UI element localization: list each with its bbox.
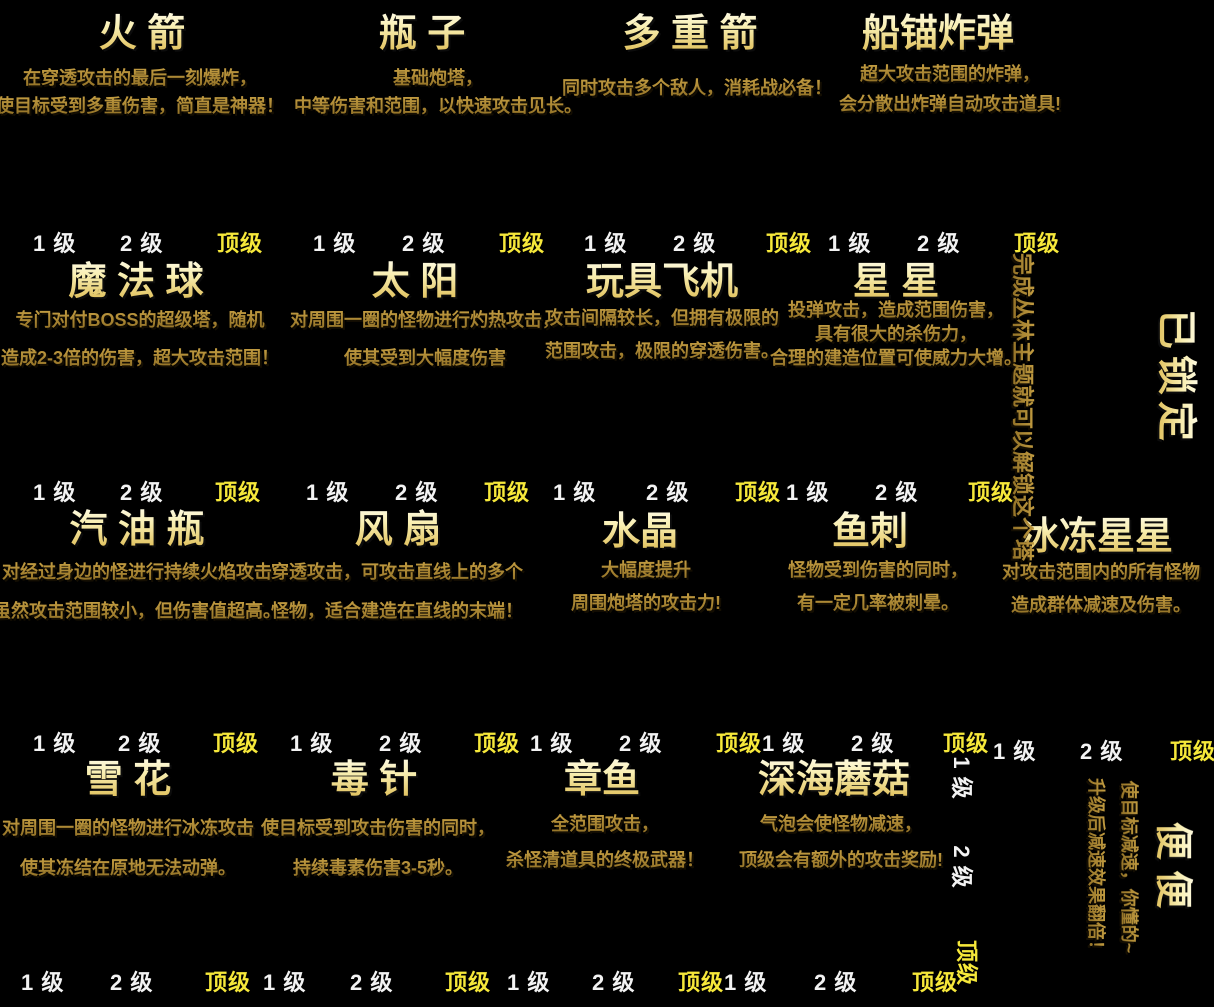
tower-desc-sun: 对周围一圈的怪物进行灼热攻击， xyxy=(290,306,560,332)
level-label-fishbone-top: 顶级 xyxy=(943,726,989,758)
level-label-bottle-top: 顶级 xyxy=(499,226,545,258)
locked-status-label: 已锁定 xyxy=(1151,309,1209,447)
tower-name-sun: 太 阳 xyxy=(372,250,459,305)
level-label-octopus-1: 1 级 xyxy=(507,965,550,997)
tower-desc-frozen-star: 对攻击范围内的所有怪物 xyxy=(1002,558,1200,584)
tower-desc-poison-needle: 持续毒素伤害3-5秒。 xyxy=(293,854,463,880)
tower-desc-deep-sea-mushroom: 气泡会使怪物减速， xyxy=(760,810,922,836)
level-label-sun-top: 顶级 xyxy=(484,475,530,507)
tower-name-octopus: 章鱼 xyxy=(564,748,640,803)
level-label-poop-top: 顶级 xyxy=(952,940,984,986)
level-label-multi-arrow-top: 顶级 xyxy=(766,226,812,258)
level-label-magic-ball-top: 顶级 xyxy=(215,475,261,507)
tower-desc-fan: 穿透攻击，可攻击直线上的多个 xyxy=(271,558,523,584)
tower-name-rocket: 火 箭 xyxy=(99,2,186,57)
tower-desc-gasoline-bottle: 对经过身边的怪进行持续火焰攻击 xyxy=(2,558,272,584)
level-label-toy-plane-1: 1 级 xyxy=(553,475,596,507)
tower-desc-bottle: 基础炮塔， xyxy=(393,64,483,90)
level-label-crystal-top: 顶级 xyxy=(716,726,762,758)
tower-encyclopedia: 火 箭在穿透攻击的最后一刻爆炸，使目标受到多重伤害，简直是神器！1 级2 级顶级… xyxy=(0,0,1214,1007)
level-label-rocket-top: 顶级 xyxy=(217,226,263,258)
tower-desc-poison-needle: 使目标受到攻击伤害的同时， xyxy=(261,814,495,840)
tower-desc-octopus: 杀怪清道具的终极武器！ xyxy=(506,846,704,872)
tower-desc-poop: 使目标减速，你懂的~ xyxy=(1117,781,1143,954)
tower-desc-multi-arrow: 同时攻击多个敌人，消耗战必备！ xyxy=(562,74,832,100)
tower-desc-octopus: 全范围攻击， xyxy=(551,810,659,836)
level-label-sun-1: 1 级 xyxy=(306,475,349,507)
level-label-snowflake-1: 1 级 xyxy=(21,965,64,997)
level-label-bottle-1: 1 级 xyxy=(313,226,356,258)
tower-name-anchor-bomb: 船锚炸弹 xyxy=(862,2,1014,57)
tower-desc-star: 合理的建造位置可使威力大增。 xyxy=(770,344,1022,370)
tower-desc-crystal: 大幅度提升 xyxy=(601,556,691,582)
tower-name-frozen-star: 冰冻星星 xyxy=(1021,505,1173,560)
level-label-star-1: 1 级 xyxy=(786,475,829,507)
level-label-gasoline-bottle-top: 顶级 xyxy=(213,726,259,758)
level-label-poison-needle-top: 顶级 xyxy=(445,965,491,997)
level-label-octopus-2: 2 级 xyxy=(592,965,635,997)
level-label-frozen-star-2: 2 级 xyxy=(1080,734,1123,766)
tower-desc-rocket: 使目标受到多重伤害，简直是神器！ xyxy=(0,92,284,118)
level-label-frozen-star-1: 1 级 xyxy=(993,734,1036,766)
level-label-deep-sea-mushroom-1: 1 级 xyxy=(724,965,767,997)
tower-desc-toy-plane: 攻击间隔较长，但拥有极限的 xyxy=(545,304,779,330)
tower-desc-fan: 怪物，适合建造在直线的末端！ xyxy=(271,597,523,623)
tower-desc-frozen-star: 造成群体减速及伤害。 xyxy=(1011,591,1191,617)
level-label-gasoline-bottle-1: 1 级 xyxy=(33,726,76,758)
tower-name-crystal: 水晶 xyxy=(602,500,678,555)
tower-desc-magic-ball: 造成2-3倍的伤害，超大攻击范围！ xyxy=(1,344,279,370)
tower-desc-anchor-bomb: 超大攻击范围的炸弹， xyxy=(860,60,1040,86)
tower-name-poison-needle: 毒 针 xyxy=(331,748,418,803)
level-label-octopus-top: 顶级 xyxy=(678,965,724,997)
tower-name-poop: 便 便 xyxy=(1150,822,1205,909)
tower-desc-toy-plane: 范围攻击，极限的穿透伤害。 xyxy=(545,337,779,363)
tower-desc-snowflake: 使其冻结在原地无法动弹。 xyxy=(20,854,236,880)
level-label-deep-sea-mushroom-2: 2 级 xyxy=(814,965,857,997)
tower-name-fan: 风 扇 xyxy=(355,498,442,553)
tower-name-magic-ball: 魔 法 球 xyxy=(68,250,203,305)
tower-desc-poop: 升级后减速效果翻倍！ xyxy=(1084,778,1110,958)
tower-desc-fishbone: 怪物受到伤害的同时， xyxy=(788,556,968,582)
tower-desc-crystal: 周围炮塔的攻击力! xyxy=(571,589,721,615)
tower-desc-sun: 使其受到大幅度伤害 xyxy=(344,344,506,370)
tower-desc-star: 具有很大的杀伤力， xyxy=(815,320,977,346)
tower-desc-fishbone: 有一定几率被刺晕。 xyxy=(797,589,959,615)
level-label-snowflake-top: 顶级 xyxy=(205,965,251,997)
level-label-poison-needle-2: 2 级 xyxy=(350,965,393,997)
level-label-fan-top: 顶级 xyxy=(474,726,520,758)
tower-desc-snowflake: 对周围一圈的怪物进行冰冻攻击 xyxy=(2,814,254,840)
tower-name-fishbone: 鱼刺 xyxy=(832,500,908,555)
tower-desc-bottle: 中等伤害和范围，以快速攻击见长。 xyxy=(294,92,582,118)
tower-name-toy-plane: 玩具飞机 xyxy=(586,250,738,305)
level-label-fan-1: 1 级 xyxy=(290,726,333,758)
level-label-poison-needle-1: 1 级 xyxy=(263,965,306,997)
tower-desc-magic-ball: 专门对付BOSS的超级塔，随机 xyxy=(15,306,264,332)
tower-desc-gasoline-bottle: 虽然攻击范围较小，但伤害值超高。 xyxy=(0,597,281,623)
tower-name-multi-arrow: 多 重 箭 xyxy=(622,2,757,57)
tower-name-gasoline-bottle: 汽 油 瓶 xyxy=(69,498,204,553)
level-label-poop-2: 2 级 xyxy=(947,845,979,888)
level-label-poop-1: 1 级 xyxy=(947,756,979,799)
tower-desc-rocket: 在穿透攻击的最后一刻爆炸， xyxy=(23,64,257,90)
locked-unlock-hint: 完成丛林主题就可以解锁这个塔 xyxy=(1008,253,1040,561)
tower-desc-anchor-bomb: 会分散出炸弹自动攻击道具! xyxy=(839,90,1061,116)
tower-name-snowflake: 雪 花 xyxy=(85,748,172,803)
tower-desc-deep-sea-mushroom: 顶级会有额外的攻击奖励! xyxy=(739,846,943,872)
level-label-snowflake-2: 2 级 xyxy=(110,965,153,997)
level-label-toy-plane-top: 顶级 xyxy=(735,475,781,507)
tower-desc-star: 投弹攻击，造成范围伤害， xyxy=(788,296,1004,322)
tower-name-bottle: 瓶 子 xyxy=(379,2,466,57)
level-label-frozen-star-top: 顶级 xyxy=(1170,734,1214,766)
tower-name-deep-sea-mushroom: 深海蘑菇 xyxy=(758,748,910,803)
